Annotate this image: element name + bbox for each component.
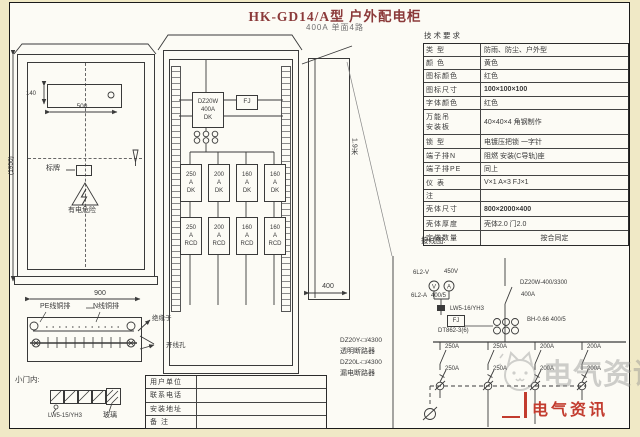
row-value: 黄色 — [481, 57, 628, 69]
row-value: 按合同定 — [481, 231, 628, 245]
title-block-row: 用户单位 — [146, 376, 326, 389]
row-label: 用户单位 — [146, 376, 197, 388]
type: RCD — [241, 240, 254, 248]
gray-watermark: 电气资讯 — [543, 351, 640, 393]
rcd-breaker-box: 160ARCD — [264, 217, 286, 255]
branch-breaker-box: 250ADK — [180, 164, 202, 202]
row-label: 万能吊安装板 — [424, 110, 481, 134]
row-value: 红色 — [481, 97, 628, 109]
row-value: 红色 — [481, 70, 628, 82]
table-row: 仪 表V×1 A×3 FJ×1 — [424, 176, 628, 190]
type: DK — [271, 187, 279, 195]
row-value: 同上 — [481, 163, 628, 175]
amp: 200 — [214, 171, 224, 179]
branch-top-label: 200A — [587, 344, 601, 351]
drawing-stage: HK-GD14/A型 户外配电柜 400A 单面4路 (1950) 140 50… — [0, 0, 640, 437]
title-block-row: 联系电话 — [146, 389, 326, 402]
unit: A — [245, 232, 249, 240]
type: DK — [187, 187, 195, 195]
row-value: 壳体2.0 门2.0 — [481, 217, 628, 230]
main-breaker-box: DZ20W 400A DK — [192, 92, 224, 128]
row-label: 字体颜色 — [424, 97, 481, 109]
unit: A — [217, 232, 221, 240]
amp: 160 — [270, 171, 280, 179]
rcd-breaker-box: 160ARCD — [236, 217, 258, 255]
tech-table-title: 技术要求 — [424, 32, 462, 40]
row-label: 端子排PE — [424, 163, 481, 175]
row-label: 注 — [424, 190, 481, 201]
pe-bar-label: PE线铜排 — [40, 303, 70, 311]
voltmeter-range: 450V — [444, 269, 458, 276]
cabinet-base — [14, 276, 158, 285]
selector-model: LW5-16/YH3 — [450, 306, 484, 313]
dim-height-1950: (1950) — [7, 146, 14, 186]
row-label: 类 型 — [424, 44, 481, 56]
glass-window — [106, 388, 121, 405]
title-block-row: 备 注 — [146, 416, 326, 428]
legend-name-2: 漏电断路器 — [340, 370, 375, 378]
dim-depth-400: 400 — [312, 283, 344, 291]
row-label: 锁 型 — [424, 135, 481, 148]
side-height-label: 1.9米 — [350, 138, 358, 155]
type: RCD — [269, 240, 282, 248]
type: DK — [215, 187, 223, 195]
row-label: 壳体尺寸 — [424, 202, 481, 216]
unit: A — [189, 232, 193, 240]
table-row: 锁 型电镀压把锁 一字针 — [424, 135, 628, 149]
legend-name-1: 透明断路器 — [340, 348, 375, 356]
main-breaker-amp-schematic: 400A — [521, 292, 535, 299]
selector-model-label: LW5-15/YH3 — [48, 413, 82, 420]
layout-inner-frame — [169, 59, 293, 366]
row-label: 端子排N — [424, 149, 481, 162]
insulator-label: 绝缘子 — [152, 315, 172, 322]
door-dashed-line — [28, 158, 142, 159]
ammeter-model: 6L2-A — [411, 293, 427, 300]
page-subtitle: 400A 单面4路 — [225, 22, 445, 33]
row-value — [197, 416, 326, 428]
row-value: 阻燃 安装(C导轨)座 — [481, 149, 628, 162]
ammeter-ratio: 400/5 — [431, 293, 446, 300]
busbar-detail-frame — [27, 317, 142, 362]
branch-breaker-box: 160ADK — [264, 164, 286, 202]
table-row: 字体颜色红色 — [424, 97, 628, 110]
row-value: 防雨、防尘、户外型 — [481, 44, 628, 56]
table-row: 类 型防雨、防尘、户外型 — [424, 44, 628, 57]
meter-window-4 — [92, 390, 106, 404]
table-row: 端子排N阻燃 安装(C导轨)座 — [424, 149, 628, 163]
n-bar-label: N线铜排 — [93, 303, 119, 311]
table-row: 注 — [424, 190, 628, 202]
table-row: 图标尺寸100×100×100 — [424, 83, 628, 97]
row-label: 安装地址 — [146, 403, 197, 415]
branch-breaker-box: 160ADK — [236, 164, 258, 202]
dim-width-900: 900 — [70, 290, 130, 298]
legend-model-2: DZ20L-□/4300 — [340, 359, 382, 366]
row-label: 仪 表 — [424, 176, 481, 189]
row-label-line1: 万能吊 — [426, 112, 478, 122]
row-label: 备 注 — [146, 416, 197, 428]
amp: 160 — [242, 171, 252, 179]
row-label: 图标颜色 — [424, 70, 481, 82]
amp: 160 — [242, 224, 252, 232]
row-value — [481, 190, 628, 201]
amp: 250 — [186, 171, 196, 179]
table-row: 壳体尺寸800×2000×400 — [424, 202, 628, 217]
legend-model-1: DZ20Y-□/4300 — [340, 337, 382, 344]
unit: A — [273, 232, 277, 240]
unit: A — [245, 179, 249, 187]
fj-label: FJ — [453, 317, 460, 325]
glass-label: 玻璃 — [103, 412, 117, 420]
main-breaker-type: DK — [204, 114, 212, 122]
danger-label: 有电危险 — [68, 207, 96, 215]
door-detail-title: 小门内: — [15, 376, 40, 384]
row-value — [197, 389, 326, 401]
rcd-breaker-box: 200ARCD — [208, 217, 230, 255]
schematic-title: 接线图: — [421, 237, 446, 245]
type: DK — [243, 187, 251, 195]
rcd-breaker-box: 250ARCD — [180, 217, 202, 255]
nameplate-label: 标牌 — [46, 165, 60, 173]
cat-logo-watermark — [496, 348, 544, 394]
meter-window-3 — [78, 390, 92, 404]
dim-door-height: 140 — [26, 91, 36, 98]
row-value: 40×40×4 角钢制作 — [481, 110, 628, 134]
title-block-row: 安装地址 — [146, 403, 326, 416]
tech-table: 类 型防雨、防尘、户外型 颜 色黄色 图标颜色红色 图标尺寸100×100×10… — [423, 43, 629, 246]
main-breaker-model-schematic: DZ20W-400/3300 — [520, 280, 567, 287]
red-watermark-dash — [502, 416, 520, 418]
row-value: 电镀压把锁 一字针 — [481, 135, 628, 148]
unit: A — [273, 179, 277, 187]
row-label: 颜 色 — [424, 57, 481, 69]
cabinet-side-view — [308, 58, 350, 300]
fj-schematic-box: FJ — [447, 315, 465, 327]
red-watermark-bar — [524, 392, 527, 418]
type: RCD — [185, 240, 198, 248]
row-value: V×1 A×3 FJ×1 — [481, 176, 628, 189]
red-watermark-text: 电气资讯 — [532, 396, 608, 420]
main-breaker-model: DZ20W — [198, 98, 218, 106]
type: RCD — [213, 240, 226, 248]
row-label: 联系电话 — [146, 389, 197, 401]
table-row: 万能吊安装板 40×40×4 角钢制作 — [424, 110, 628, 135]
amp: 200 — [214, 224, 224, 232]
unit: A — [217, 179, 221, 187]
nameplate-rect — [76, 165, 92, 176]
ct-model: BH-0.66 400/5 — [527, 317, 566, 324]
amp: 250 — [186, 224, 196, 232]
table-row: 颜 色黄色 — [424, 57, 628, 70]
dim-door-width: 500 — [60, 103, 104, 110]
row-value: 800×2000×400 — [481, 202, 628, 216]
row-value — [197, 376, 326, 388]
row-label: 壳体厚度 — [424, 217, 481, 230]
unit: A — [189, 179, 193, 187]
row-label: 图标尺寸 — [424, 83, 481, 96]
branch-top-label: 250A — [445, 344, 459, 351]
fj-box: FJ — [236, 95, 258, 110]
row-value — [197, 403, 326, 415]
row-value: 100×100×100 — [481, 83, 628, 96]
amp: 160 — [270, 224, 280, 232]
voltmeter-model: 6L2-V — [413, 270, 429, 277]
branch-breaker-box: 200ADK — [208, 164, 230, 202]
table-row: 壳体厚度壳体2.0 门2.0 — [424, 217, 628, 231]
title-block: 用户单位 联系电话 安装地址 备 注 — [145, 375, 327, 429]
energy-meter-model: DT862-3(6) — [438, 328, 469, 335]
table-row: 图标颜色红色 — [424, 70, 628, 83]
meter-window-2 — [64, 390, 78, 404]
row-label-line2: 安装板 — [426, 122, 478, 132]
fj-label: FJ — [243, 98, 250, 107]
table-row: 定做数量按合同定 — [424, 231, 628, 245]
meter-window-1 — [50, 390, 64, 404]
wire-hole-label: 开线孔 — [166, 342, 186, 349]
branch-bottom-label: 250A — [445, 366, 459, 373]
main-breaker-amp: 400A — [201, 106, 215, 114]
table-row: 端子排PE同上 — [424, 163, 628, 176]
